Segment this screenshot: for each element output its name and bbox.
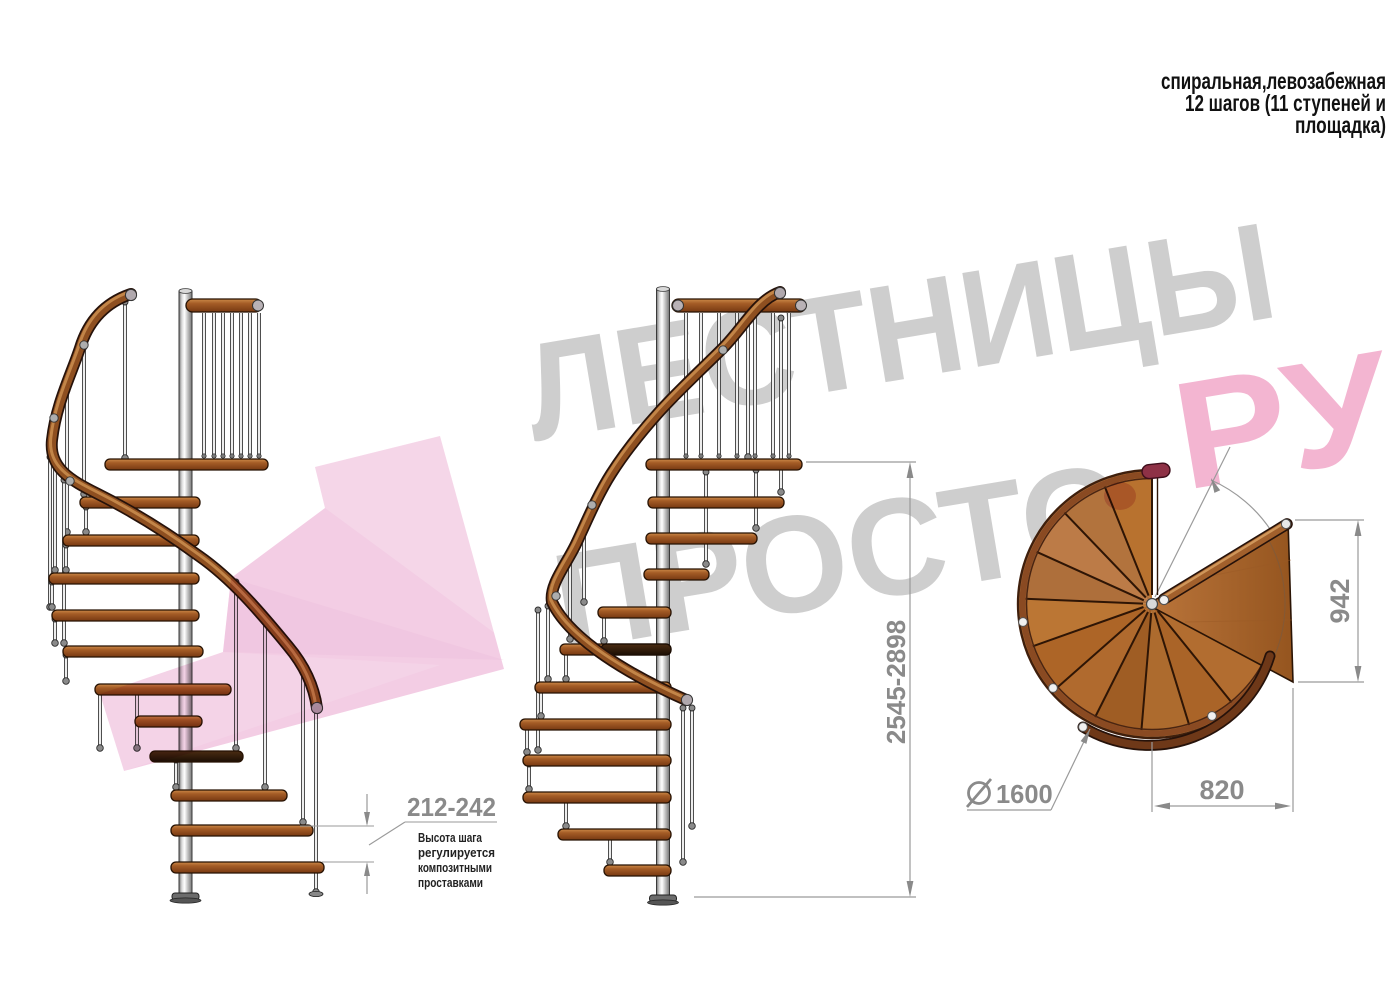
- svg-text:942: 942: [1325, 578, 1355, 623]
- svg-text:регулируется: регулируется: [418, 845, 495, 860]
- svg-text:Высота шага: Высота шага: [418, 830, 483, 845]
- svg-text:1600: 1600: [996, 781, 1053, 809]
- svg-text:ЛЕСТНИЦЫ: ЛЕСТНИЦЫ: [514, 194, 1286, 471]
- svg-text:820: 820: [1199, 775, 1244, 805]
- svg-text:212-242: 212-242: [407, 792, 496, 822]
- svg-text:РУ: РУ: [1162, 318, 1400, 523]
- svg-text:композитными: композитными: [418, 860, 492, 875]
- svg-text:площадка): площадка): [1295, 112, 1386, 138]
- svg-text:2545-2898: 2545-2898: [881, 620, 911, 744]
- svg-text:проставками: проставками: [418, 875, 483, 890]
